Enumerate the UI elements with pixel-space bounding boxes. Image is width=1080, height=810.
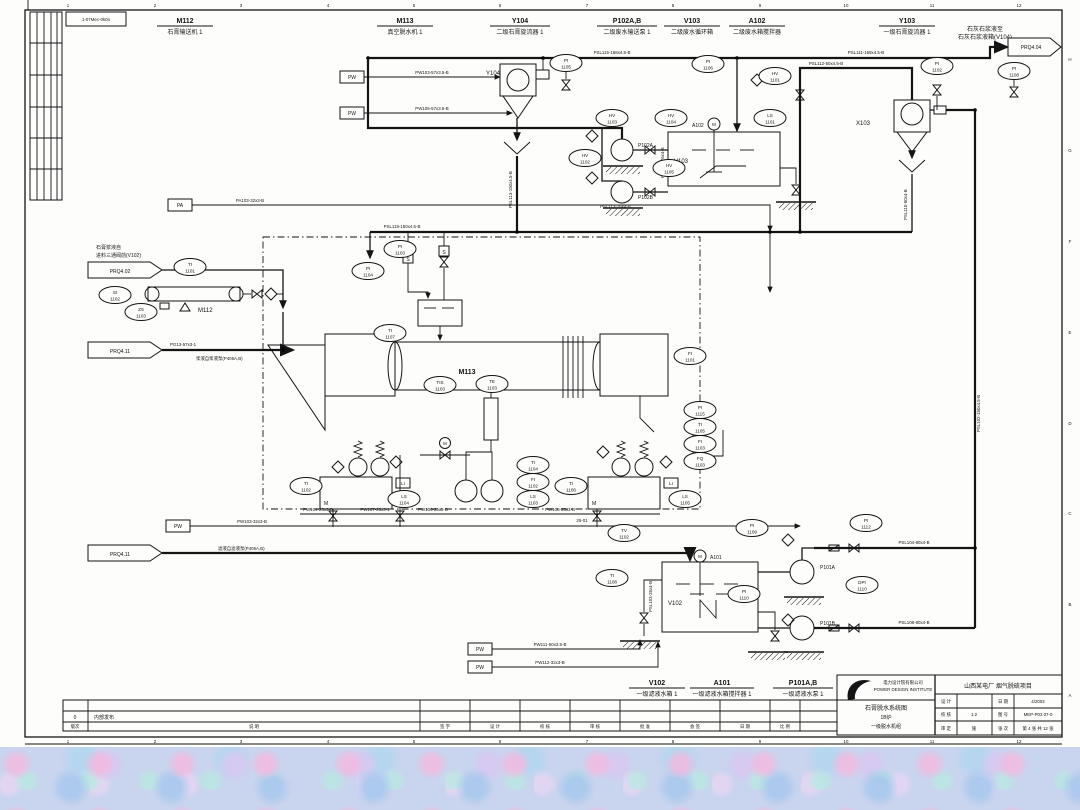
svg-text:E: E (1069, 330, 1072, 335)
svg-text:P101A,B: P101A,B (789, 680, 817, 687)
svg-text:25-01: 25-01 (576, 518, 588, 523)
svg-text:一级滤液水箱 1: 一级滤液水箱 1 (636, 690, 678, 698)
svg-text:V102: V102 (668, 601, 683, 607)
svg-text:PSL119-150x4.5-B: PSL119-150x4.5-B (384, 224, 421, 229)
svg-text:TI: TI (569, 481, 573, 486)
svg-text:PRQ4.02: PRQ4.02 (110, 269, 131, 275)
svg-text:PSL102-150x4.5-B: PSL102-150x4.5-B (976, 395, 981, 432)
offpage-connector-prq4-11-upper: PRQ4.11 PG13-57x3-1 浆液自浆液泵(P405A,B) (88, 312, 293, 362)
svg-text:1103: 1103 (528, 501, 538, 506)
svg-text:1101: 1101 (765, 120, 775, 125)
drawing-ref-box: 1-07Mec-0k0n (66, 12, 126, 26)
svg-text:PW: PW (348, 111, 356, 117)
svg-text:1105: 1105 (680, 501, 690, 506)
reference-list-table (30, 12, 62, 200)
svg-text:4: 4 (327, 3, 330, 8)
svg-text:TIS: TIS (436, 380, 443, 385)
svg-text:一级石膏旋流器 1: 一级石膏旋流器 1 (883, 28, 931, 36)
svg-text:Y104: Y104 (512, 18, 528, 25)
svg-text:LI: LI (669, 481, 673, 486)
svg-text:1: 1 (67, 739, 70, 744)
svg-text:滤液自滤液泵(P405A,B): 滤液自滤液泵(P405A,B) (218, 545, 265, 552)
svg-text:比 例: 比 例 (780, 723, 791, 730)
svg-text:图 号: 图 号 (998, 712, 1009, 718)
svg-text:LI: LI (401, 481, 405, 486)
svg-text:TI: TI (388, 328, 392, 333)
svg-text:TI: TI (531, 460, 535, 465)
svg-text:Y104: Y104 (486, 71, 501, 77)
svg-text:PRQ4.04: PRQ4.04 (1021, 45, 1042, 51)
svg-text:F: F (1069, 239, 1072, 244)
svg-text:校 核: 校 核 (941, 711, 952, 718)
svg-text:PSL111-168x4.5-B: PSL111-168x4.5-B (848, 50, 885, 55)
svg-text:P102A: P102A (638, 143, 654, 149)
svg-text:二级废水箱搅拌器: 二级废水箱搅拌器 (733, 28, 781, 36)
svg-text:TV: TV (621, 528, 628, 533)
svg-text:1103: 1103 (136, 314, 146, 319)
svg-text:8: 8 (672, 739, 675, 744)
svg-text:审 定: 审 定 (941, 725, 952, 732)
svg-text:M112: M112 (176, 18, 193, 25)
svg-text:一级滤液水箱搅拌器 1: 一级滤液水箱搅拌器 1 (692, 690, 752, 698)
svg-text:A102: A102 (749, 18, 766, 25)
svg-text:电力设计院有限公司: 电力设计院有限公司 (883, 679, 923, 686)
svg-text:一级脱水机组: 一级脱水机组 (871, 723, 901, 730)
svg-text:12: 12 (1017, 3, 1022, 8)
svg-text:PW112-32x3-B: PW112-32x3-B (535, 660, 565, 665)
svg-text:PW: PW (476, 665, 484, 671)
offpage-connector-prq4-04: 石灰石浆液至 石灰石浆液箱(V104) PRQ4.04 (958, 25, 1061, 56)
svg-text:校 核: 校 核 (540, 723, 551, 730)
svg-text:V102: V102 (649, 680, 665, 687)
svg-text:TI: TI (304, 481, 308, 486)
svg-text:PI: PI (935, 61, 939, 66)
svg-text:C: C (1068, 511, 1071, 516)
svg-text:HV: HV (582, 153, 589, 158)
svg-text:石膏输送机 1: 石膏输送机 1 (167, 28, 203, 36)
svg-text:FI: FI (531, 477, 535, 482)
svg-text:张 次: 张 次 (998, 725, 1009, 732)
utility-source-pw2: PW PW105-57x3.5-B (340, 106, 512, 119)
svg-text:8: 8 (672, 3, 675, 8)
svg-text:10: 10 (844, 739, 849, 744)
svg-text:PSL112-50x4.5-B: PSL112-50x4.5-B (809, 61, 843, 66)
svg-text:PG13-57x3-1: PG13-57x3-1 (170, 342, 197, 347)
svg-text:MEP-P03 07-0: MEP-P03 07-0 (1024, 712, 1053, 717)
company-logo (848, 680, 871, 700)
svg-text:1110: 1110 (739, 596, 749, 601)
svg-text:PI: PI (564, 58, 568, 63)
svg-text:1:2: 1:2 (971, 712, 978, 717)
svg-text:审 核: 审 核 (590, 723, 601, 730)
svg-text:1103: 1103 (395, 251, 405, 256)
svg-text:4: 4 (327, 739, 330, 744)
svg-text:1102: 1102 (528, 484, 538, 489)
pid-diagram: 1 2 3 4 5 6 7 8 9 10 11 12 1 2 3 4 5 6 7… (0, 0, 1080, 747)
svg-text:批 准: 批 准 (640, 723, 651, 730)
svg-text:二级废水输送泵 1: 二级废水输送泵 1 (603, 28, 651, 36)
svg-text:M: M (443, 441, 447, 446)
svg-text:1103: 1103 (695, 463, 705, 468)
svg-text:M: M (698, 554, 702, 559)
svg-text:2: 2 (154, 3, 157, 8)
svg-text:PA: PA (177, 203, 184, 209)
svg-text:P102A,B: P102A,B (613, 18, 641, 25)
svg-text:PI: PI (864, 518, 868, 523)
svg-text:P101A: P101A (820, 565, 836, 571)
utility-source-pw1: PW PW103-57x3.5-B (340, 70, 500, 83)
svg-text:PW103-32x3-B: PW103-32x3-B (237, 519, 267, 524)
svg-text:TI: TI (698, 422, 702, 427)
svg-text:DPI: DPI (858, 580, 866, 585)
svg-text:PW111-50x3.5-B: PW111-50x3.5-B (534, 642, 567, 647)
svg-text:一级滤液水泵 1: 一级滤液水泵 1 (782, 690, 824, 698)
svg-text:LS: LS (401, 494, 407, 499)
svg-text:PW107-25x3-1: PW107-25x3-1 (360, 507, 390, 512)
pipe-pw-headers: PW PW103-32x3-B PW104-25x3-B PW107-25x3-… (166, 507, 800, 532)
svg-text:PW108-25x3-B: PW108-25x3-B (545, 507, 575, 512)
svg-text:设 计: 设 计 (490, 723, 501, 730)
svg-text:1104: 1104 (666, 120, 676, 125)
svg-text:HV: HV (772, 71, 779, 76)
svg-text:PW: PW (174, 524, 182, 530)
svg-text:PSL103-25x4-B: PSL103-25x4-B (648, 581, 653, 612)
svg-text:说 明: 说 明 (249, 723, 260, 730)
svg-text:石灰石浆液至: 石灰石浆液至 (967, 25, 1003, 33)
svg-text:PI: PI (398, 244, 402, 249)
svg-text:PSL115-168x4.5-B: PSL115-168x4.5-B (594, 50, 631, 55)
pump-p101a: P101A PSL104-80x4-B (758, 534, 975, 605)
pipe-mid-header: PSL119-150x4.5-B (370, 224, 912, 292)
svg-text:9: 9 (759, 739, 762, 744)
svg-text:3: 3 (240, 3, 243, 8)
svg-text:6: 6 (499, 739, 502, 744)
svg-text:真空脱水机 1: 真空脱水机 1 (387, 28, 423, 36)
svg-text:1101: 1101 (770, 78, 780, 83)
svg-text:1102: 1102 (301, 488, 311, 493)
pipe-right-riser: PSL102-150x4.5-B (930, 85, 981, 628)
svg-text:2: 2 (154, 739, 157, 744)
svg-text:LS: LS (530, 494, 536, 499)
svg-text:1102: 1102 (619, 535, 629, 540)
svg-text:1108: 1108 (607, 580, 617, 585)
svg-text:TI: TI (610, 573, 614, 578)
svg-text:A: A (1069, 693, 1072, 698)
offpage-connector-prq4-11-lower: PRQ4.11 滤液自滤液泵(P405A,B) (88, 545, 690, 561)
svg-text:G: G (1068, 148, 1072, 153)
svg-text:PI: PI (366, 266, 370, 271)
svg-text:4/2002: 4/2002 (1031, 699, 1045, 704)
svg-text:0: 0 (74, 715, 77, 721)
svg-text:SI: SI (113, 290, 117, 295)
svg-text:FI: FI (688, 351, 692, 356)
svg-text:LS: LS (767, 113, 773, 118)
svg-text:TE: TE (489, 379, 495, 384)
svg-text:11: 11 (930, 3, 935, 8)
svg-text:石膏浆液自: 石膏浆液自 (96, 244, 121, 251)
svg-text:进料三通阀前(V102): 进料三通阀前(V102) (96, 252, 141, 259)
svg-text:1103: 1103 (435, 387, 445, 392)
ruler-letters-right: H G F E D C B A (1068, 57, 1072, 698)
svg-text:5: 5 (413, 3, 416, 8)
svg-text:12: 12 (1017, 739, 1022, 744)
svg-text:1115: 1115 (695, 412, 705, 417)
utility-source-pa: PA PA103-32x3-B (168, 198, 770, 231)
svg-text:5: 5 (413, 739, 416, 744)
svg-text:V103: V103 (684, 18, 700, 25)
svg-text:3: 3 (240, 739, 243, 744)
svg-text:PW105-57x3.5-B: PW105-57x3.5-B (415, 106, 449, 111)
svg-text:7: 7 (586, 3, 589, 8)
svg-text:1-07Mec-0k0n: 1-07Mec-0k0n (82, 17, 111, 22)
svg-text:山西某电厂 烟气脱硫项目: 山西某电厂 烟气脱硫项目 (964, 682, 1032, 690)
svg-text:X103: X103 (856, 121, 871, 127)
svg-text:PSL104-80x4-B: PSL104-80x4-B (899, 540, 930, 545)
svg-text:PI: PI (698, 405, 702, 410)
svg-text:1105: 1105 (695, 429, 705, 434)
svg-text:PW106-25x3-B: PW106-25x3-B (418, 507, 448, 512)
svg-text:HV: HV (666, 163, 673, 168)
svg-text:会 签: 会 签 (690, 723, 701, 730)
svg-text:M: M (592, 501, 596, 507)
ruler-numbers-top: 1 2 3 4 5 6 7 8 9 10 11 12 (67, 3, 1022, 8)
svg-text:TI: TI (188, 262, 192, 267)
svg-text:PI: PI (750, 523, 754, 528)
svg-text:M: M (712, 122, 716, 127)
svg-text:施: 施 (972, 725, 977, 732)
svg-text:M113: M113 (396, 18, 413, 25)
pid-drawing-sheet: 1 2 3 4 5 6 7 8 9 10 11 12 1 2 3 4 5 6 7… (0, 0, 1080, 747)
svg-text:1105: 1105 (561, 65, 571, 70)
svg-text:B: B (1069, 602, 1072, 607)
svg-text:1102: 1102 (932, 68, 942, 73)
svg-text:PA103-32x3-B: PA103-32x3-B (236, 198, 264, 203)
svg-text:1108: 1108 (1009, 73, 1019, 78)
svg-text:1106: 1106 (566, 488, 576, 493)
svg-text:1103: 1103 (487, 386, 497, 391)
svg-text:石膏脱水系统图: 石膏脱水系统图 (865, 704, 907, 712)
svg-text:PW103-57x3.5-B: PW103-57x3.5-B (415, 70, 449, 75)
svg-text:1104: 1104 (399, 501, 409, 506)
desktop-background (0, 747, 1080, 810)
svg-text:ZS: ZS (138, 307, 144, 312)
svg-text:二级废水循环箱: 二级废水循环箱 (671, 28, 713, 36)
ruler-numbers-bottom: 1 2 3 4 5 6 7 8 9 10 11 12 (67, 739, 1022, 744)
svg-text:1104: 1104 (363, 273, 373, 278)
svg-text:PSL108-80x4-B: PSL108-80x4-B (899, 620, 930, 625)
svg-text:6: 6 (499, 3, 502, 8)
svg-text:M113: M113 (458, 369, 475, 376)
svg-text:PRQ4.11: PRQ4.11 (110, 552, 130, 558)
vacuum-receiver-assembly: M (420, 390, 503, 502)
svg-text:1101: 1101 (685, 358, 695, 363)
svg-text:HV: HV (668, 113, 675, 118)
svg-text:POWER DESIGN INSTITUTE: POWER DESIGN INSTITUTE (874, 687, 933, 692)
svg-text:1B炉: 1B炉 (880, 714, 891, 721)
svg-text:内部发布: 内部发布 (94, 714, 114, 721)
pipe-top-header: PSL115-168x4.5-B PSL111-168x4.5-B (366, 47, 1007, 60)
svg-text:PW: PW (348, 75, 356, 81)
svg-text:1103: 1103 (695, 446, 705, 451)
revision-table: 0 内部发布 版次 说 明 签 字 设 计 校 核 审 核 批 准 会 签 日 … (63, 700, 837, 731)
svg-text:PI: PI (742, 589, 746, 594)
svg-text:第 4 张 共 12 张: 第 4 张 共 12 张 (1023, 725, 1055, 732)
svg-text:设 计: 设 计 (941, 698, 952, 705)
svg-text:1103: 1103 (607, 120, 617, 125)
svg-text:1112: 1112 (861, 525, 871, 530)
svg-text:LS: LS (682, 494, 688, 499)
svg-text:A102: A102 (692, 123, 704, 129)
svg-text:A101: A101 (714, 680, 731, 687)
svg-text:9: 9 (759, 3, 762, 8)
svg-text:FI: FI (698, 439, 702, 444)
svg-text:石灰石浆液箱(V104): 石灰石浆液箱(V104) (958, 33, 1012, 41)
svg-text:签 字: 签 字 (440, 723, 451, 729)
svg-text:M112: M112 (198, 308, 213, 314)
svg-text:7: 7 (586, 739, 589, 744)
svg-text:FQ: FQ (697, 456, 704, 461)
svg-text:PI: PI (1012, 66, 1016, 71)
svg-text:PSL110-50x4-B: PSL110-50x4-B (903, 189, 908, 220)
svg-text:11: 11 (930, 739, 935, 744)
svg-text:日 期: 日 期 (998, 699, 1009, 705)
svg-text:1102: 1102 (580, 160, 590, 165)
svg-text:PW104-25x3-B: PW104-25x3-B (303, 507, 333, 512)
svg-text:1106: 1106 (703, 66, 713, 71)
svg-text:H: H (1068, 57, 1071, 62)
header-equipment-tags: M112石膏输送机 1 M113真空脱水机 1 Y104二级石膏旋流器 1 P1… (157, 18, 935, 36)
svg-text:1101: 1101 (185, 269, 195, 274)
svg-text:1109: 1109 (747, 530, 757, 535)
svg-text:PRQ4.11: PRQ4.11 (110, 349, 130, 355)
svg-text:PSL113-150x4.5-B: PSL113-150x4.5-B (508, 171, 513, 208)
svg-text:D: D (1068, 421, 1071, 426)
svg-text:PI: PI (706, 59, 710, 64)
svg-text:A101: A101 (710, 555, 722, 561)
pump-p101b: P101B PSL108-80x4-B (758, 614, 975, 660)
cyclone-y104: Y104 PSL113-150x4.5-B (486, 58, 549, 232)
svg-text:Y103: Y103 (899, 18, 915, 25)
svg-text:版次: 版次 (71, 723, 80, 730)
svg-text:PW: PW (476, 647, 484, 653)
svg-text:10: 10 (844, 3, 849, 8)
footer-equipment-tags: V102一级滤液水箱 1 A101一级滤液水箱搅拌器 1 P101A,B一级滤液… (629, 680, 833, 698)
svg-text:1: 1 (67, 3, 70, 8)
svg-text:1104: 1104 (528, 467, 538, 472)
svg-text:浆液自浆液泵(P405A,B): 浆液自浆液泵(P405A,B) (196, 355, 243, 362)
title-block: 电力设计院有限公司 POWER DESIGN INSTITUTE 石膏脱水系统图… (837, 675, 1062, 735)
svg-text:二级石膏旋流器 1: 二级石膏旋流器 1 (496, 28, 544, 36)
svg-text:HV: HV (609, 113, 616, 118)
svg-text:1110: 1110 (857, 587, 867, 592)
conveyor-m112: M112 (145, 287, 283, 314)
svg-text:1102: 1102 (110, 297, 120, 302)
svg-text:日 期: 日 期 (740, 724, 751, 730)
svg-text:1107: 1107 (385, 335, 395, 340)
svg-text:P101B: P101B (820, 621, 836, 627)
svg-text:1105: 1105 (664, 170, 674, 175)
